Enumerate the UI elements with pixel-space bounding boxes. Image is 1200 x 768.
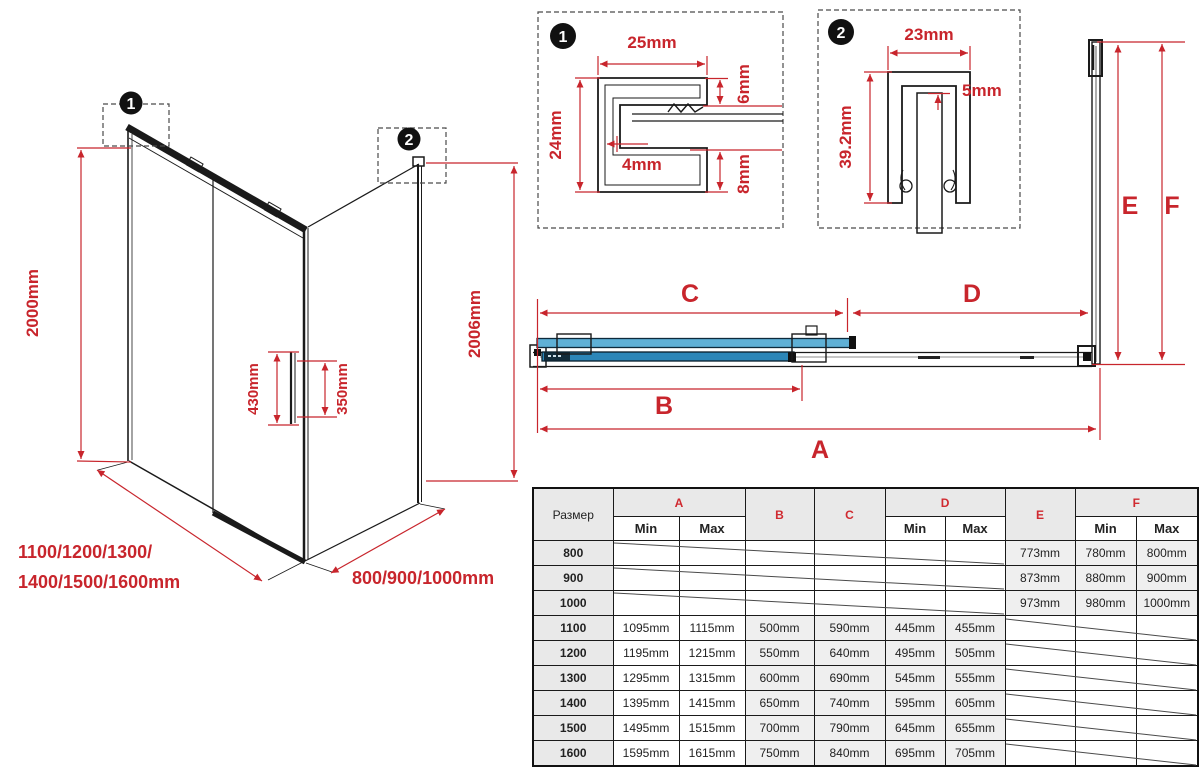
plan-dim-e: E — [1122, 192, 1139, 220]
value-cell: 773mm — [1005, 541, 1075, 566]
value-cell: 1095mm — [613, 616, 679, 641]
value-cell: 495mm — [885, 641, 945, 666]
top-rail — [127, 127, 306, 230]
value-cell: 750mm — [745, 741, 814, 767]
value-cell: 705mm — [945, 741, 1005, 767]
detail1-bottom-flange-label: 8mm — [734, 154, 753, 194]
table-subheader-max: Max — [1136, 517, 1198, 541]
dim-widths-label-2: 1400/1500/1600mm — [18, 572, 180, 592]
detail-2-badge-number: 2 — [837, 25, 846, 42]
value-cell: 700mm — [745, 716, 814, 741]
value-cell: 740mm — [814, 691, 885, 716]
detail1-wall-label: 4mm — [622, 155, 662, 174]
detail2-height-label: 39.2mm — [836, 105, 855, 168]
table-row: 1400 1395mm 1415mm 650mm 740mm 595mm 605… — [533, 691, 1198, 716]
value-cell: 655mm — [945, 716, 1005, 741]
table-subheader-min: Min — [613, 517, 679, 541]
glass-panel-section — [917, 93, 942, 233]
value-cell: 1195mm — [613, 641, 679, 666]
value-cell: 500mm — [745, 616, 814, 641]
iso-view: 2000mm 430mm 350mm 1100/1200/1300/ 1400/… — [18, 92, 518, 593]
table-row: 1500 1495mm 1515mm 700mm 790mm 645mm 655… — [533, 716, 1198, 741]
value-cell: 640mm — [814, 641, 885, 666]
table-row: 800 773mm 780mm 800mm — [533, 541, 1198, 566]
plan-dim-b: B — [655, 392, 673, 420]
size-table-wrap: Размер A B C D E F Min Max Min Max Min M… — [532, 487, 1197, 767]
value-cell: 650mm — [745, 691, 814, 716]
table-header-e: E — [1005, 488, 1075, 541]
fixed-glass-panel — [537, 339, 852, 348]
size-cell: 1200 — [533, 641, 613, 666]
detail-1-badge-number: 1 — [559, 29, 568, 46]
table-subheader-max: Max — [945, 517, 1005, 541]
dim-handle-length-label: 430mm — [245, 363, 262, 415]
size-cell: 1500 — [533, 716, 613, 741]
plan-dim-d: D — [963, 280, 981, 308]
table-header-d: D — [885, 488, 1005, 517]
value-cell: 1395mm — [613, 691, 679, 716]
plan-dim-a: A — [811, 436, 829, 464]
value-cell: 600mm — [745, 666, 814, 691]
value-cell: 1495mm — [613, 716, 679, 741]
detail-1-view: 1 25mm 24mm 4mm 6mm 8mm — [538, 12, 783, 228]
value-cell: 605mm — [945, 691, 1005, 716]
value-cell: 1515mm — [679, 716, 745, 741]
table-row: 900 873mm 880mm 900mm — [533, 566, 1198, 591]
value-cell: 973mm — [1005, 591, 1075, 616]
value-cell: 873mm — [1005, 566, 1075, 591]
value-cell: 445mm — [885, 616, 945, 641]
bottom-rail — [213, 513, 305, 562]
size-cell: 1400 — [533, 691, 613, 716]
table-header-size: Размер — [533, 488, 613, 541]
table-subheader-min: Min — [885, 517, 945, 541]
value-cell: 1000mm — [1136, 591, 1198, 616]
size-cell: 1000 — [533, 591, 613, 616]
table-subheader-min: Min — [1075, 517, 1136, 541]
value-cell: 790mm — [814, 716, 885, 741]
value-cell: 900mm — [1136, 566, 1198, 591]
table-header-c: C — [814, 488, 885, 541]
value-cell: 455mm — [945, 616, 1005, 641]
value-cell: 555mm — [945, 666, 1005, 691]
plan-dim-f: F — [1164, 192, 1179, 220]
table-subheader-max: Max — [679, 517, 745, 541]
table-row: 1000 973mm 980mm 1000mm — [533, 591, 1198, 616]
table-header-f: F — [1075, 488, 1198, 517]
table-row: 1200 1195mm 1215mm 550mm 640mm 495mm 505… — [533, 641, 1198, 666]
value-cell: 645mm — [885, 716, 945, 741]
dim-side-height-label: 2006mm — [465, 290, 484, 358]
technical-drawing-page: 2000mm 430mm 350mm 1100/1200/1300/ 1400/… — [0, 0, 1200, 768]
detail-1-marker-number: 1 — [127, 96, 136, 113]
value-cell: 1115mm — [679, 616, 745, 641]
table-header-a: A — [613, 488, 745, 517]
value-cell: 1595mm — [613, 741, 679, 767]
detail-2-marker-number: 2 — [405, 132, 414, 149]
value-cell: 980mm — [1075, 591, 1136, 616]
table-header-b: B — [745, 488, 814, 541]
value-cell: 780mm — [1075, 541, 1136, 566]
plan-view: C D B A E F — [530, 40, 1185, 464]
detail-2-view: 2 23mm 39.2mm 5mm — [818, 10, 1020, 233]
size-cell: 900 — [533, 566, 613, 591]
detail1-height-label: 24mm — [546, 110, 565, 159]
value-cell: 880mm — [1075, 566, 1136, 591]
value-cell: 1615mm — [679, 741, 745, 767]
detail1-width-label: 25mm — [627, 33, 676, 52]
value-cell: 595mm — [885, 691, 945, 716]
dim-widths-label-1: 1100/1200/1300/ — [18, 542, 152, 562]
value-cell: 545mm — [885, 666, 945, 691]
value-cell: 690mm — [814, 666, 885, 691]
dim-height-label: 2000mm — [23, 269, 42, 337]
size-cell: 800 — [533, 541, 613, 566]
size-table: Размер A B C D E F Min Max Min Max Min M… — [532, 487, 1199, 767]
c-profile — [598, 78, 707, 192]
value-cell: 1295mm — [613, 666, 679, 691]
detail1-top-flange-label: 6mm — [734, 64, 753, 104]
detail2-width-label: 23mm — [904, 25, 953, 44]
table-row: 1600 1595mm 1615mm 750mm 840mm 695mm 705… — [533, 741, 1198, 767]
value-cell: 550mm — [745, 641, 814, 666]
value-cell: 840mm — [814, 741, 885, 767]
value-cell: 505mm — [945, 641, 1005, 666]
value-cell: 1215mm — [679, 641, 745, 666]
size-cell: 1600 — [533, 741, 613, 767]
size-cell: 1300 — [533, 666, 613, 691]
value-cell: 1315mm — [679, 666, 745, 691]
value-cell: 1415mm — [679, 691, 745, 716]
value-cell: 590mm — [814, 616, 885, 641]
plan-dim-c: C — [681, 280, 699, 308]
dim-handle-holes-label: 350mm — [334, 363, 351, 415]
table-row: 1100 1095mm 1115mm 500mm 590mm 445mm 455… — [533, 616, 1198, 641]
value-cell: 695mm — [885, 741, 945, 767]
dim-depths-label: 800/900/1000mm — [352, 568, 494, 588]
value-cell: 800mm — [1136, 541, 1198, 566]
size-cell: 1100 — [533, 616, 613, 641]
detail2-gap-label: 5mm — [962, 81, 1002, 100]
table-row: 1300 1295mm 1315mm 600mm 690mm 545mm 555… — [533, 666, 1198, 691]
